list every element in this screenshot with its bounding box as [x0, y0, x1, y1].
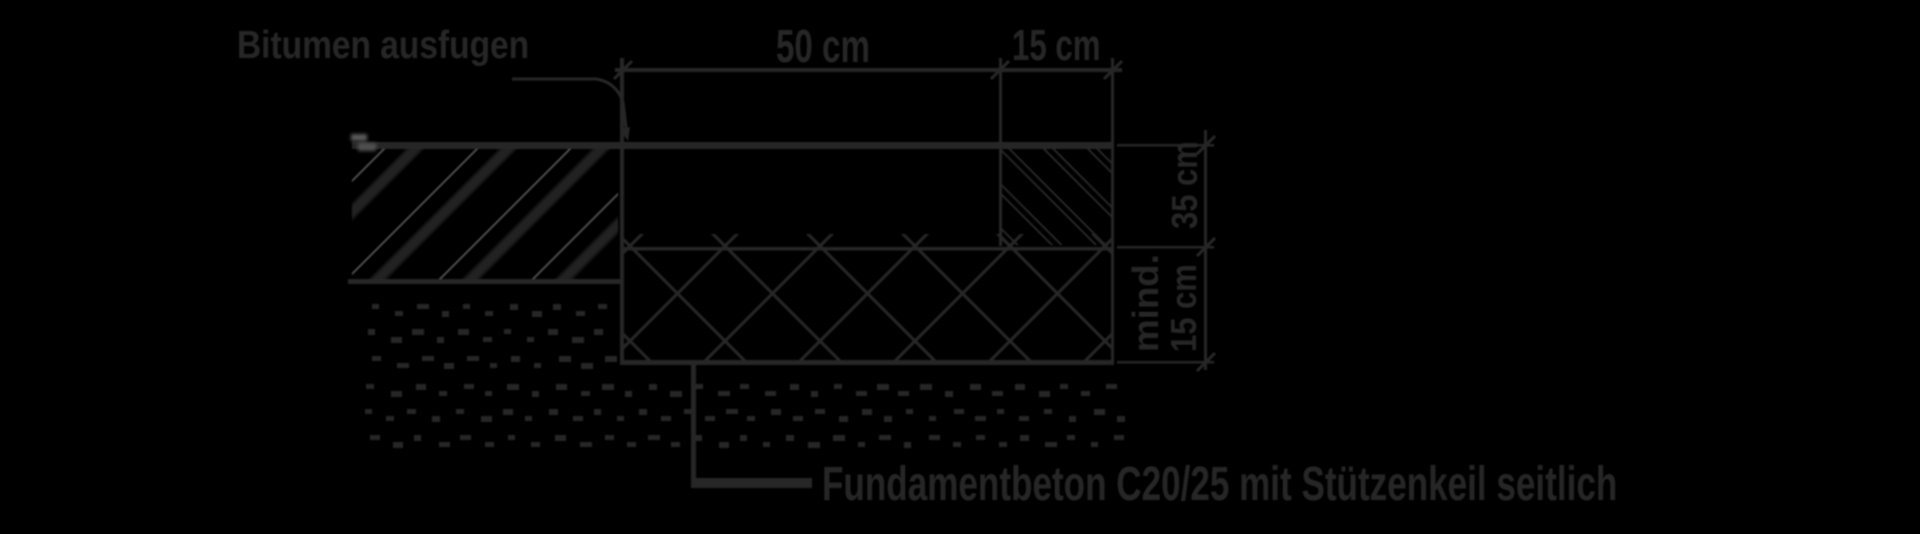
- svg-text:Fundamentbeton C20/25 mit Stüt: Fundamentbeton C20/25 mit Stützenkeil se…: [822, 457, 1617, 511]
- svg-text:35 cm: 35 cm: [1166, 141, 1206, 229]
- svg-text:mind.: mind.: [1125, 254, 1166, 352]
- svg-text:50 cm: 50 cm: [776, 22, 870, 72]
- svg-text:15 cm: 15 cm: [1165, 264, 1205, 352]
- svg-text:15 cm: 15 cm: [1012, 21, 1101, 71]
- svg-text:Bitumen ausfugen: Bitumen ausfugen: [237, 23, 529, 67]
